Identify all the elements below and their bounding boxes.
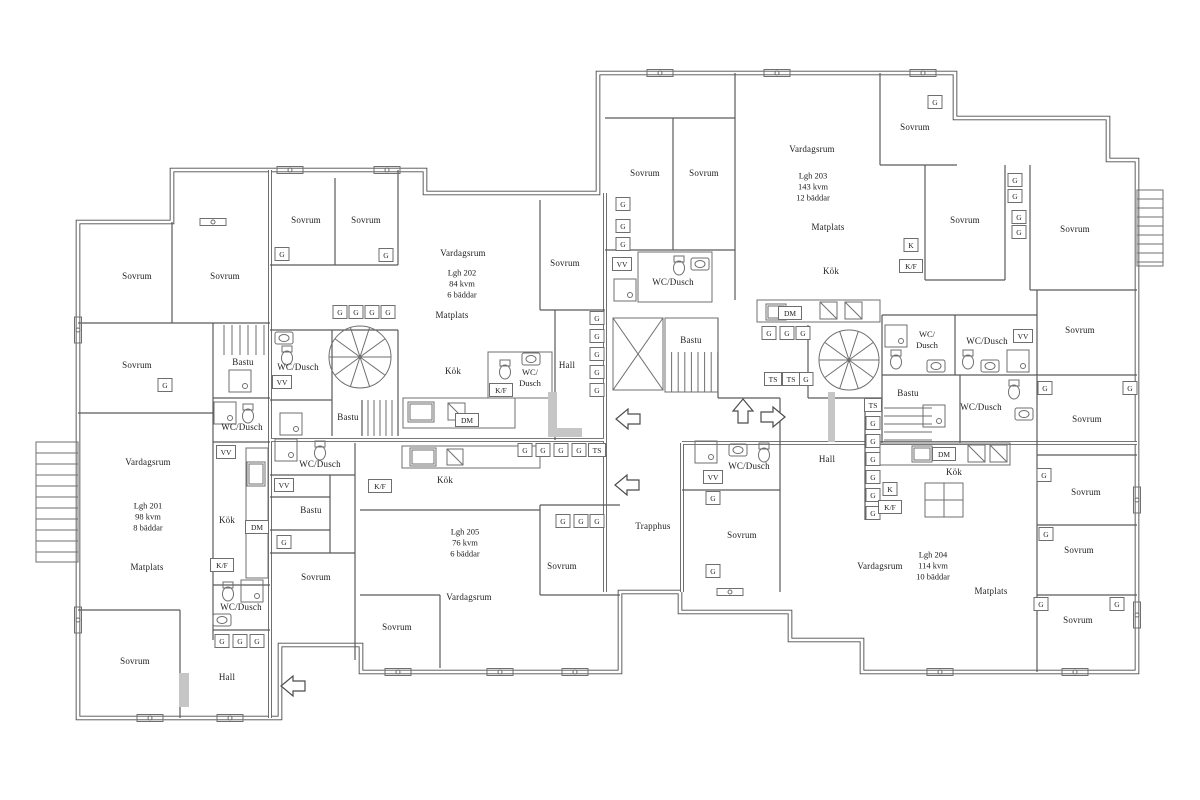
room-label-wc-dusch: WC/Dusch [916, 329, 938, 351]
wardrobe-box-g: G [762, 326, 777, 340]
room-label-sovrum: Sovrum [547, 561, 577, 571]
room-label-wc_dusch: WC/Dusch [652, 277, 694, 287]
room-label-wc_dusch: WC/Dusch [299, 459, 341, 469]
room-label-kok: Kök [946, 467, 962, 477]
apartment-id: Lgh 202 [447, 267, 477, 278]
room-label-matplats: Matplats [974, 586, 1007, 596]
room-label-sovrum: Sovrum [291, 215, 321, 225]
wardrobe-box-g: G [706, 564, 721, 578]
room-label-sovrum: Sovrum [1072, 414, 1102, 424]
room-label-kok: Kök [437, 475, 453, 485]
wardrobe-box-g: G [554, 443, 569, 457]
water-heater-box-vv: VV [703, 470, 723, 484]
dishwasher-box-dm: DM [455, 413, 479, 427]
wardrobe-box-g: G [799, 372, 814, 386]
drying-cabinet-box-ts: TS [588, 443, 606, 457]
wardrobe-box-g: G [275, 247, 290, 261]
wardrobe-box-g: G [590, 383, 605, 397]
room-label-trapphus: Trapphus [635, 521, 670, 531]
wardrobe-box-g: G [928, 95, 943, 109]
wardrobe-box-g: G [215, 634, 230, 648]
water-heater-box-vv: VV [1013, 329, 1033, 343]
room-label-sovrum: Sovrum [351, 215, 381, 225]
wardrobe-box-g: G [866, 416, 881, 430]
room-label-sovrum: Sovrum [900, 122, 930, 132]
drying-cabinet-box-ts: TS [764, 372, 782, 386]
wardrobe-box-g: G [1039, 527, 1054, 541]
room-label-bastu: Bastu [300, 505, 322, 515]
fridge-freezer-box-kf: K/F [210, 558, 234, 572]
wardrobe-box-g: G [1008, 189, 1023, 203]
wardrobe-box-g: G [1110, 597, 1125, 611]
room-label-sovrum: Sovrum [1071, 487, 1101, 497]
apartment-beds: 6 bäddar [450, 549, 480, 560]
wardrobe-box-g: G [1038, 381, 1053, 395]
apartment-info-2: Lgh 203143 kvm12 bäddar [796, 170, 830, 203]
wardrobe-box-g: G [536, 443, 551, 457]
dishwasher-box-dm: DM [245, 520, 269, 534]
apartment-area: 114 kvm [916, 560, 950, 571]
room-label-matplats: Matplats [130, 562, 163, 572]
room-label-wc_dusch: WC/Dusch [220, 602, 262, 612]
labels-layer: SovrumSovrumSovrumSovrumSovrumSovrumSovr… [0, 0, 1200, 800]
room-label-matplats: Matplats [435, 310, 468, 320]
room-label-wc-line2: Dusch [519, 378, 541, 389]
room-label-hall: Hall [219, 672, 235, 682]
apartment-id: Lgh 204 [916, 549, 950, 560]
room-label-hall: Hall [819, 454, 835, 464]
room-label-wc-dusch: WC/Dusch [519, 367, 541, 389]
room-label-bastu: Bastu [680, 335, 702, 345]
wardrobe-box-g: G [706, 491, 721, 505]
apartment-area: 143 kvm [796, 181, 830, 192]
room-label-wc_dusch: WC/Dusch [728, 461, 770, 471]
wardrobe-box-g: G [379, 248, 394, 262]
fridge-freezer-box-kf: K/F [489, 383, 513, 397]
room-label-sovrum: Sovrum [630, 168, 660, 178]
wardrobe-box-g: G [158, 378, 173, 392]
wardrobe-box-g: G [518, 443, 533, 457]
wardrobe-box-g: G [333, 305, 348, 319]
room-label-sovrum: Sovrum [382, 622, 412, 632]
water-heater-box-vv: VV [612, 257, 632, 271]
wardrobe-box-g: G [590, 311, 605, 325]
drying-cabinet-box-ts: TS [864, 398, 882, 412]
room-label-sovrum: Sovrum [210, 271, 240, 281]
room-label-wc-line1: WC/ [916, 329, 938, 340]
apartment-beds: 6 bäddar [447, 290, 477, 301]
apartment-id: Lgh 201 [133, 500, 163, 511]
room-label-vardagsrum: Vardagsrum [857, 561, 903, 571]
wardrobe-box-g: G [1034, 597, 1049, 611]
wardrobe-box-g: G [616, 197, 631, 211]
room-label-matplats: Matplats [811, 222, 844, 232]
wardrobe-box-g: G [1012, 210, 1027, 224]
room-label-wc-line2: Dusch [916, 340, 938, 351]
room-label-sovrum: Sovrum [727, 530, 757, 540]
wardrobe-box-g: G [572, 443, 587, 457]
wardrobe-box-g: G [250, 634, 265, 648]
room-label-vardagsrum: Vardagsrum [440, 248, 486, 258]
room-label-sovrum: Sovrum [122, 271, 152, 281]
wardrobe-box-g: G [866, 452, 881, 466]
room-label-wc_dusch: WC/Dusch [966, 336, 1008, 346]
wardrobe-box-g: G [1123, 381, 1138, 395]
dishwasher-box-dm: DM [778, 306, 802, 320]
drying-cabinet-box-ts: TS [782, 372, 800, 386]
room-label-wc_dusch: WC/Dusch [960, 402, 1002, 412]
wardrobe-box-g: G [866, 470, 881, 484]
wardrobe-box-g: G [277, 535, 292, 549]
room-label-vardagsrum: Vardagsrum [446, 592, 492, 602]
apartment-beds: 10 bäddar [916, 572, 950, 583]
wardrobe-box-g: G [590, 347, 605, 361]
wardrobe-box-g: G [616, 219, 631, 233]
room-label-sovrum: Sovrum [1064, 545, 1094, 555]
apartment-info-4: Lgh 20576 kvm6 bäddar [450, 526, 480, 559]
room-label-hall: Hall [559, 360, 575, 370]
room-label-kok: Kök [219, 515, 235, 525]
room-label-sovrum: Sovrum [122, 360, 152, 370]
room-label-sovrum: Sovrum [1065, 325, 1095, 335]
room-label-sovrum: Sovrum [550, 258, 580, 268]
wardrobe-box-g: G [365, 305, 380, 319]
room-label-bastu: Bastu [897, 388, 919, 398]
room-label-vardagsrum: Vardagsrum [789, 144, 835, 154]
water-heater-box-vv: VV [274, 478, 294, 492]
apartment-id: Lgh 203 [796, 170, 830, 181]
room-label-kok: Kök [823, 266, 839, 276]
room-label-sovrum: Sovrum [950, 215, 980, 225]
wardrobe-box-g: G [1008, 173, 1023, 187]
room-label-kok: Kök [445, 366, 461, 376]
fridge-freezer-box-kf: K/F [878, 500, 902, 514]
wardrobe-box-g: G [1037, 468, 1052, 482]
room-label-sovrum: Sovrum [1060, 224, 1090, 234]
apartment-info-1: Lgh 20284 kvm6 bäddar [447, 267, 477, 300]
apartment-area: 84 kvm [447, 278, 477, 289]
fridge-freezer-box-kf: K/F [899, 259, 923, 273]
water-heater-box-vv: VV [272, 375, 292, 389]
room-label-wc_dusch: WC/Dusch [221, 422, 263, 432]
wardrobe-box-g: G [381, 305, 396, 319]
room-label-sovrum: Sovrum [689, 168, 719, 178]
wardrobe-box-g: G [590, 329, 605, 343]
apartment-id: Lgh 205 [450, 526, 480, 537]
wardrobe-box-g: G [574, 514, 589, 528]
wardrobe-box-g: G [1012, 225, 1027, 239]
apartment-area: 76 kvm [450, 537, 480, 548]
apartment-info-3: Lgh 204114 kvm10 bäddar [916, 549, 950, 582]
apartment-info-0: Lgh 20198 kvm8 bäddar [133, 500, 163, 533]
wardrobe-box-g: G [616, 237, 631, 251]
wardrobe-box-g: G [590, 514, 605, 528]
water-heater-box-vv: VV [216, 445, 236, 459]
wardrobe-box-g: G [590, 365, 605, 379]
room-label-sovrum: Sovrum [1063, 615, 1093, 625]
room-label-sovrum: Sovrum [301, 572, 331, 582]
room-label-vardagsrum: Vardagsrum [125, 457, 171, 467]
wardrobe-box-g: G [349, 305, 364, 319]
wardrobe-box-g: G [556, 514, 571, 528]
room-label-wc_dusch: WC/Dusch [277, 362, 319, 372]
apartment-beds: 8 bäddar [133, 523, 163, 534]
room-label-sovrum: Sovrum [120, 656, 150, 666]
fridge-box-k: K [904, 238, 919, 252]
apartment-area: 98 kvm [133, 511, 163, 522]
floor-plan: SovrumSovrumSovrumSovrumSovrumSovrumSovr… [0, 0, 1200, 800]
wardrobe-box-g: G [796, 326, 811, 340]
wardrobe-box-g: G [780, 326, 795, 340]
wardrobe-box-g: G [233, 634, 248, 648]
room-label-wc-line1: WC/ [519, 367, 541, 378]
wardrobe-box-g: G [866, 434, 881, 448]
room-label-bastu: Bastu [232, 357, 254, 367]
fridge-box-k: K [883, 482, 898, 496]
room-label-bastu: Bastu [337, 412, 359, 422]
fridge-freezer-box-kf: K/F [368, 479, 392, 493]
apartment-beds: 12 bäddar [796, 193, 830, 204]
dishwasher-box-dm: DM [932, 447, 956, 461]
